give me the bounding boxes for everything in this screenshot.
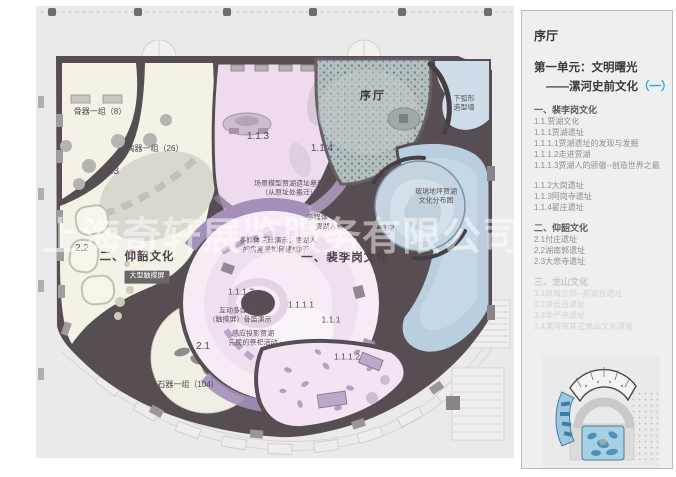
outline-item: 1.1.1.2走进贾湖 bbox=[534, 149, 672, 160]
outline-item: 3.2凌云台遗址 bbox=[534, 299, 672, 310]
floor-minimap bbox=[542, 356, 660, 468]
outline-item: 3.1筑城立邦--郝家台遗址 bbox=[534, 288, 672, 299]
outline-item: 1.1.1贾湖遗址 bbox=[534, 127, 672, 138]
legend-hall-label: 序厅 bbox=[534, 27, 672, 44]
outline-item: 1.1.2大岗遗址 bbox=[534, 180, 672, 191]
outline-section-3-title: 三、龙山文化 bbox=[534, 276, 672, 288]
outline-item: 3.3华严寺遗址 bbox=[534, 310, 672, 321]
floor-plan-svg bbox=[0, 0, 520, 477]
outline-item: 3.4漯河市其它龙山文化遗址 bbox=[534, 321, 672, 332]
legend-unit-subtitle-number: （一） bbox=[638, 81, 673, 93]
outline-item: 1.1.1.3贾湖人的骄傲--创造世界之最 bbox=[534, 160, 672, 171]
outline-item: 1.1.贾湖文化 bbox=[534, 116, 672, 127]
outline-item: 2.2湖南郭遗址 bbox=[534, 245, 672, 256]
minimap-highlight-bottom bbox=[582, 426, 624, 460]
floor-plan: 骨器一组（8） 陶器一组（26） 2.3 2.2 二、仰韶文化 大型触摸屏 2.… bbox=[0, 0, 520, 477]
outline-item: 2.3大悲寺遗址 bbox=[534, 256, 672, 267]
outline-spacer bbox=[534, 171, 672, 180]
outline-section-1-title: 一、裴李岗文化 bbox=[534, 104, 672, 116]
outline-item: 1.1.4翟庄遗址 bbox=[534, 202, 672, 213]
outline-item: 2.1付庄遗址 bbox=[534, 234, 672, 245]
legend-unit-title: 第一单元：文明曙光 bbox=[534, 59, 672, 75]
page: { "watermark": "上海奇轩展览服务有限公司", "sidebar"… bbox=[0, 0, 676, 477]
legend-panel: 序厅 第一单元：文明曙光 ——漯河史前文化（一） 一、裴李岗文化 1.1.贾湖文… bbox=[521, 10, 673, 469]
outline-section-3: 三、龙山文化 3.1筑城立邦--郝家台遗址 3.2凌云台遗址 3.3华严寺遗址 … bbox=[534, 276, 672, 332]
legend-unit-subtitle: ——漯河史前文化（一） bbox=[546, 78, 672, 94]
legend-outline: 一、裴李岗文化 1.1.贾湖文化 1.1.1贾湖遗址 1.1.1.1贾湖遗址的发… bbox=[534, 104, 672, 332]
legend-unit-subtitle-text: ——漯河史前文化 bbox=[546, 81, 638, 93]
outline-section-2-title: 二、仰韶文化 bbox=[534, 222, 672, 234]
outline-item: 1.1.3阿岗寺遗址 bbox=[534, 191, 672, 202]
outline-item: 1.1.1.1贾湖遗址的发现与发掘 bbox=[534, 138, 672, 149]
